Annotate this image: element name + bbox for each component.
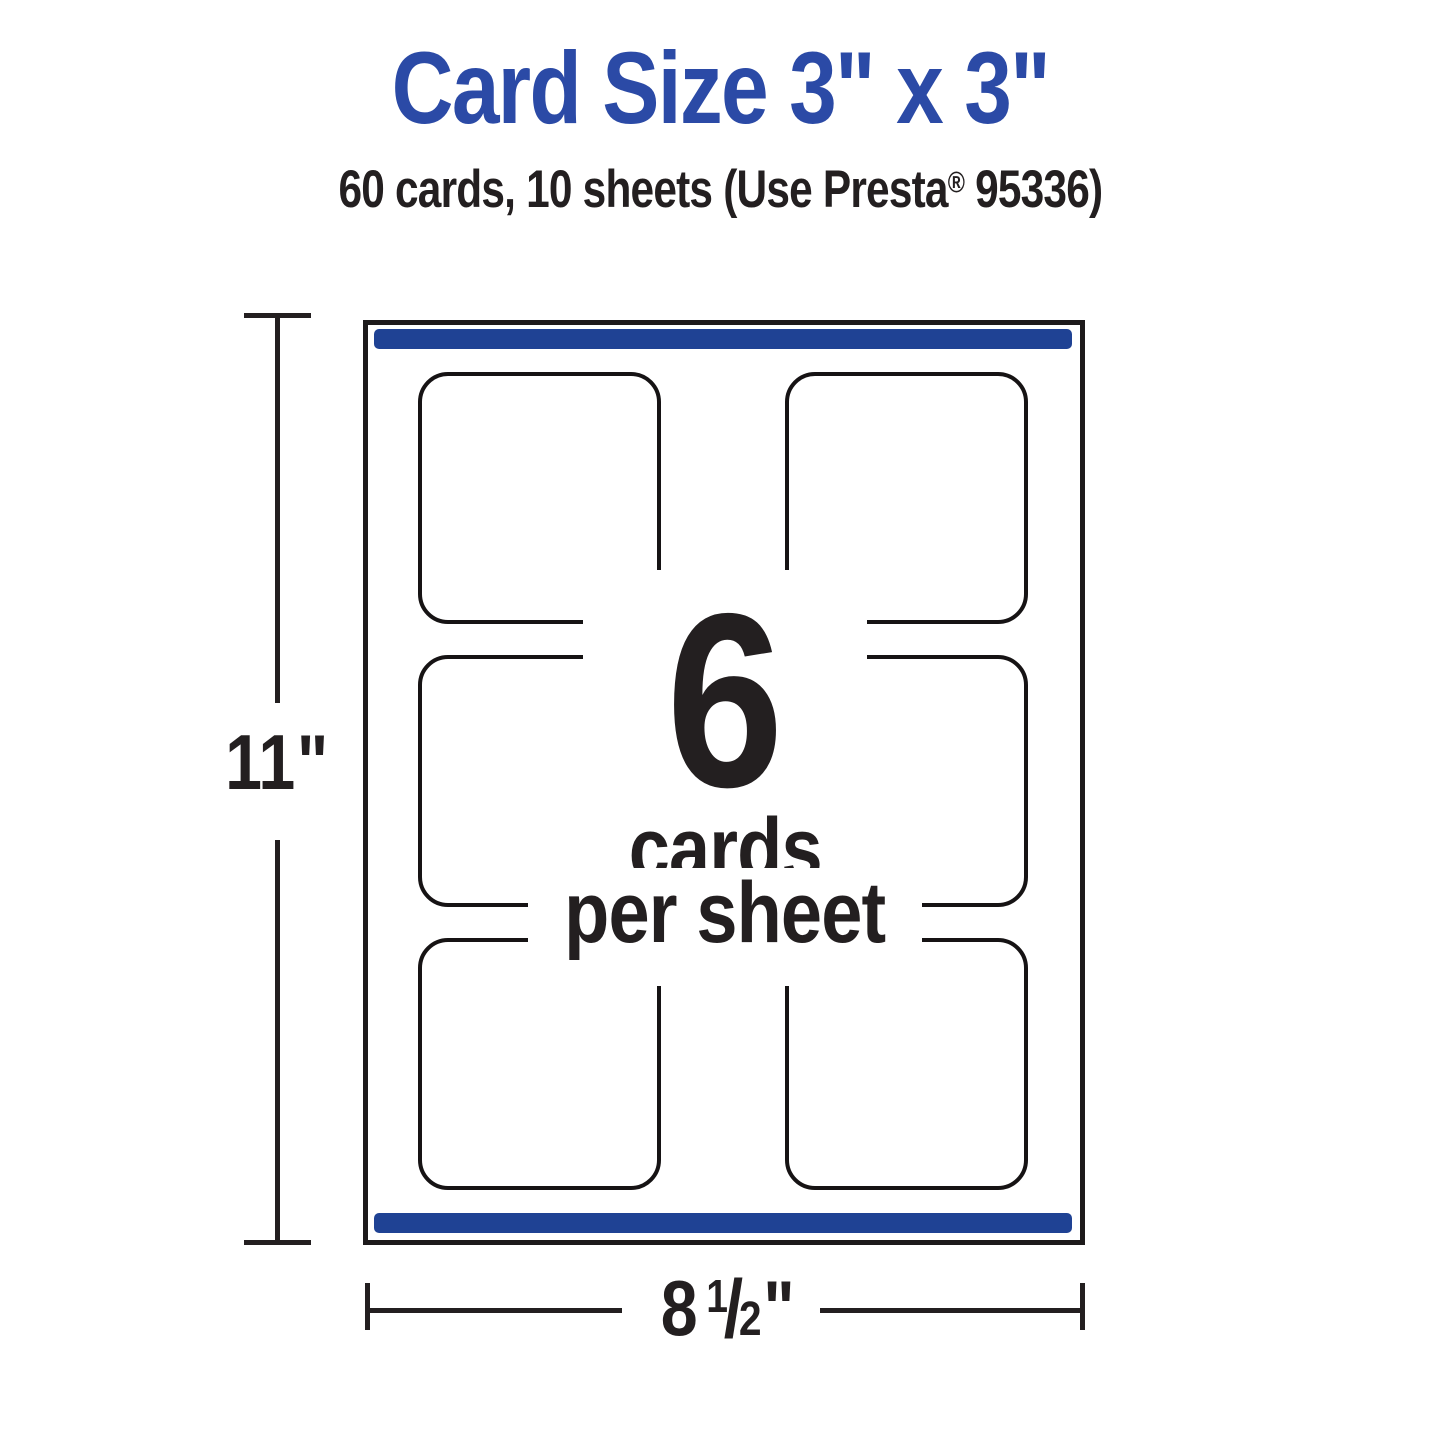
- height-value: 11: [225, 718, 295, 806]
- page-title: Card Size 3" x 3": [0, 30, 1440, 147]
- width-whole: 8: [661, 1264, 698, 1352]
- sheet-bottom-strip: [374, 1213, 1072, 1233]
- width-dim-line-right: [820, 1308, 1083, 1313]
- width-dim-right-tick: [1080, 1283, 1085, 1330]
- registered-trademark-mark: ®: [947, 167, 963, 199]
- page-title-text: Card Size 3" x 3": [391, 30, 1049, 147]
- subtitle-post: 95336): [964, 160, 1102, 219]
- page-subtitle: 60 cards, 10 sheets (Use Presta® 95336): [0, 160, 1440, 221]
- sheet-top-strip: [374, 329, 1072, 349]
- width-unit-mark: ": [763, 1264, 794, 1352]
- height-unit-mark: ": [297, 718, 328, 806]
- width-dim-left-tick: [365, 1283, 370, 1330]
- width-fraction-denominator: 2: [739, 1293, 762, 1346]
- cards-count-overlay: 6 cards: [583, 570, 867, 892]
- per-sheet-label: per sheet: [528, 868, 922, 986]
- page-subtitle-text: 60 cards, 10 sheets (Use Presta® 95336): [338, 160, 1102, 221]
- cards-count-number: 6: [583, 576, 867, 824]
- height-dim-bottom-cap: [244, 1240, 311, 1245]
- height-dim-line-lower: [275, 840, 280, 1245]
- height-dim-line-upper: [275, 313, 280, 703]
- height-dim-label: 11": [187, 723, 367, 801]
- subtitle-pre: 60 cards, 10 sheets (Use Presta: [338, 160, 947, 219]
- diagram-canvas: Card Size 3" x 3" 60 cards, 10 sheets (U…: [0, 0, 1440, 1440]
